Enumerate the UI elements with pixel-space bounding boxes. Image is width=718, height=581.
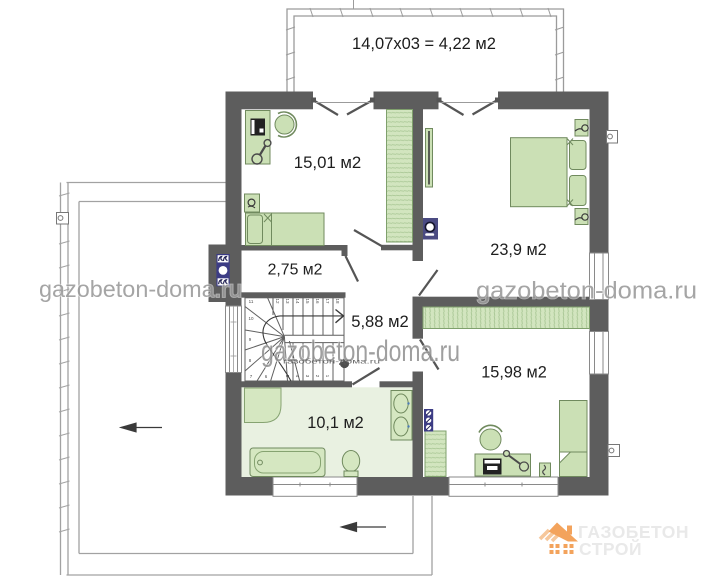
svg-text:18: 18 (335, 298, 340, 304)
svg-text:газобетон-дома.ru: газобетон-дома.ru (283, 358, 380, 366)
svg-text:12: 12 (275, 298, 280, 304)
svg-text:СТРОЙ: СТРОЙ (579, 538, 642, 559)
svg-text:23,9 м2: 23,9 м2 (490, 241, 546, 259)
svg-text:gazobeton-doma.ru: gazobeton-doma.ru (476, 278, 697, 305)
svg-text:10,1 м2: 10,1 м2 (307, 414, 363, 432)
svg-text:14: 14 (295, 298, 300, 304)
svg-text:11: 11 (249, 299, 254, 304)
svg-text:15: 15 (305, 298, 310, 304)
svg-text:2,75 м2: 2,75 м2 (268, 262, 323, 279)
svg-text:14,07х03 = 4,22 м2: 14,07х03 = 4,22 м2 (352, 35, 496, 53)
svg-text:15,01 м2: 15,01 м2 (294, 153, 362, 172)
svg-text:5,88 м2: 5,88 м2 (351, 312, 409, 331)
svg-text:15,98 м2: 15,98 м2 (481, 364, 547, 382)
svg-text:13: 13 (285, 298, 290, 304)
svg-text:16: 16 (315, 298, 320, 304)
svg-text:10: 10 (248, 316, 254, 321)
svg-text:gazobeton-doma.ru: gazobeton-doma.ru (39, 276, 242, 302)
svg-text:17: 17 (325, 298, 330, 304)
